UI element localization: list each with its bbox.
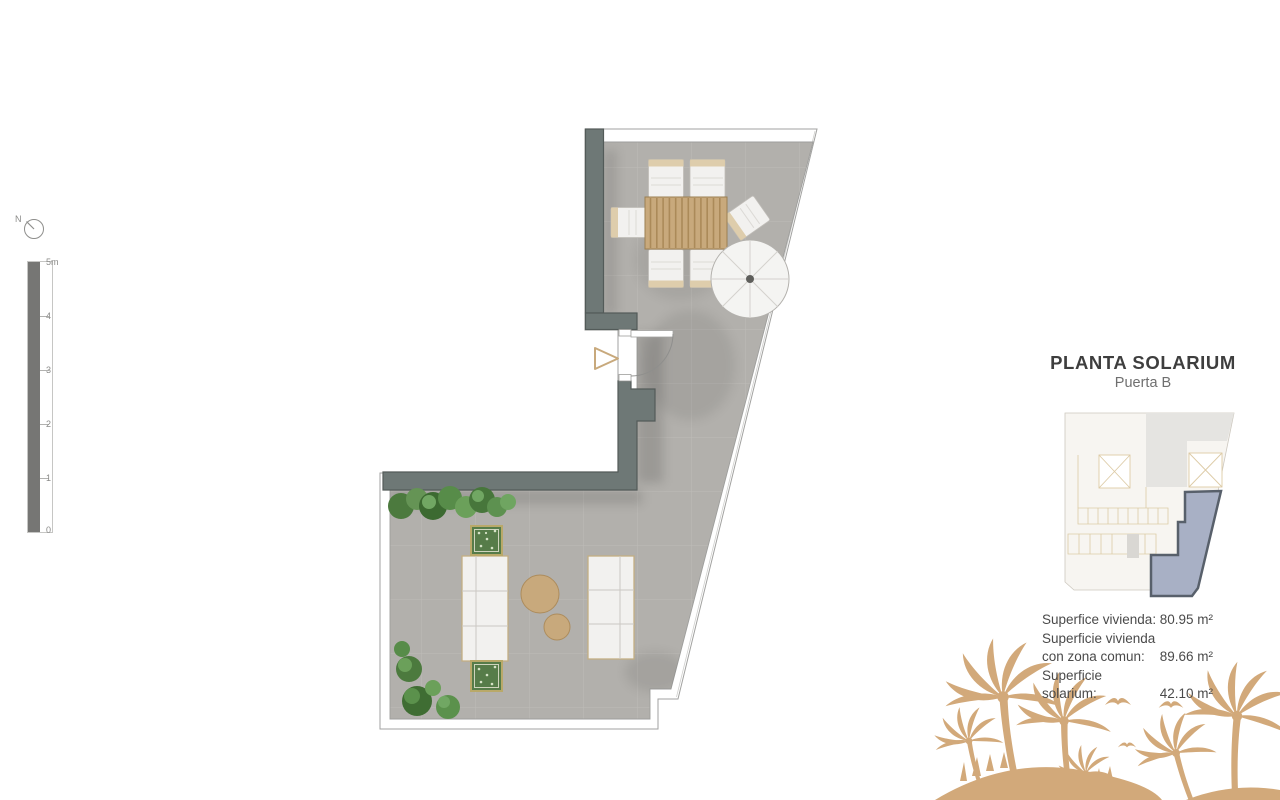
- door-jamb-top: [619, 330, 631, 337]
- surface-value: 42.10 m²: [1160, 685, 1213, 704]
- key-plan: [1065, 413, 1234, 596]
- sofa-left: [462, 556, 508, 661]
- scale-label: 4: [46, 311, 51, 321]
- wall-upper-block: [586, 313, 638, 330]
- page-subtitle: Puerta B: [1030, 375, 1256, 391]
- chair: [649, 250, 684, 288]
- parasol: [711, 240, 789, 318]
- sand-mound: [1186, 788, 1280, 800]
- chair: [649, 160, 684, 198]
- surface-label: Superficie solarium:: [1042, 667, 1160, 704]
- north-label: N: [15, 214, 22, 224]
- wall-upper-pillar: [586, 129, 604, 313]
- door-leaf: [631, 331, 673, 338]
- coffee-table-large: [521, 575, 559, 613]
- page-title: PLANTA SOLARIUM: [1030, 352, 1256, 374]
- surface-label: Superficie vivienda con zona comun:: [1042, 630, 1160, 667]
- north-indicator: N: [15, 214, 44, 239]
- surface-value: 80.95 m²: [1160, 611, 1213, 630]
- chair: [611, 208, 647, 238]
- surface-row: Superficie vivienda con zona comun: 89.6…: [1042, 630, 1213, 667]
- sand-mound: [935, 767, 1162, 800]
- wall-lower: [383, 381, 655, 490]
- door-jamb-bottom: [619, 375, 631, 382]
- scale-label: 0: [46, 525, 51, 535]
- surface-row: Superfice vivienda: 80.95 m²: [1042, 611, 1213, 630]
- scale-label: 3: [46, 365, 51, 375]
- entry-arrow-icon: [595, 348, 618, 369]
- scale-bar-fill: [28, 262, 40, 532]
- sofa-right: [588, 556, 634, 659]
- surface-label: Superfice vivienda:: [1042, 611, 1160, 630]
- scale-bar: 5m 4 3 2 1 0: [27, 261, 53, 533]
- main-floor-plan: [380, 129, 817, 729]
- planter: [471, 526, 502, 555]
- scale-label: 5m: [46, 257, 59, 267]
- coffee-table-small: [544, 614, 570, 640]
- planter: [471, 661, 502, 691]
- scale-label: 1: [46, 473, 51, 483]
- chair: [690, 160, 725, 198]
- surface-row: Superficie solarium: 42.10 m²: [1042, 667, 1213, 704]
- bird-icon: [1118, 742, 1136, 747]
- surface-value: 89.66 m²: [1160, 648, 1213, 667]
- plan-sheet: N: [0, 0, 1280, 800]
- dining-table: [645, 197, 727, 249]
- surface-areas: Superfice vivienda: 80.95 m² Superficie …: [1042, 611, 1213, 704]
- scale-label: 2: [46, 419, 51, 429]
- key-plan-core: [1127, 534, 1139, 558]
- palm-tree-icon: [1128, 706, 1228, 800]
